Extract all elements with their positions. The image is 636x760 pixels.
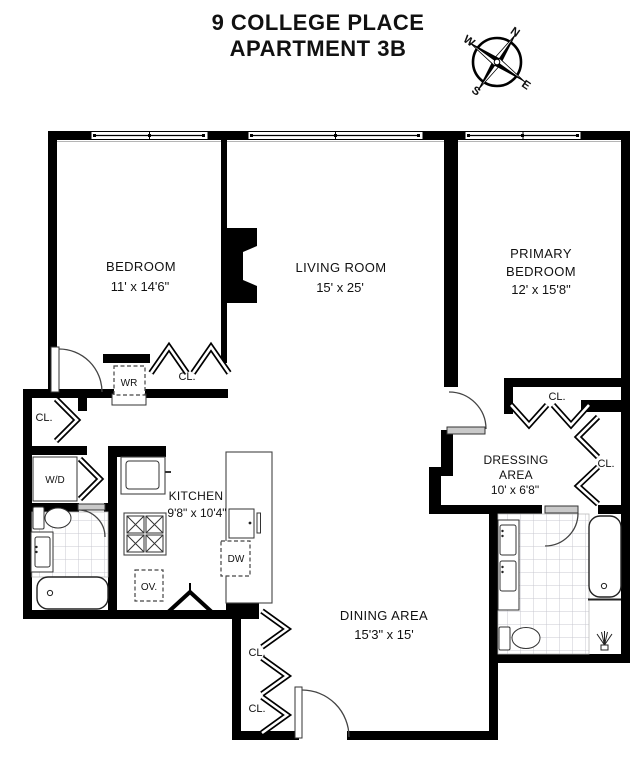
washer-dryer-label: W/D xyxy=(45,475,64,486)
dressing-area-label-1: DRESSING xyxy=(483,453,548,467)
toilet-icon xyxy=(33,507,71,529)
wall-segment xyxy=(208,131,248,140)
stove-icon xyxy=(124,513,166,555)
wall-segment xyxy=(504,378,630,387)
oven-icon: OV. xyxy=(135,570,163,601)
wall-segment xyxy=(621,131,630,663)
bedroom-dims: 11' x 14'6" xyxy=(111,279,170,294)
bathtub-icon xyxy=(37,577,108,609)
closet-label-hall: CL. xyxy=(35,412,52,424)
wall-segment xyxy=(108,446,166,457)
dressing-area-dims: 10' x 6'8" xyxy=(491,483,539,497)
wall-segment xyxy=(78,389,87,411)
windows xyxy=(91,132,581,140)
oven-label: OV. xyxy=(141,582,157,593)
closet-label-bedroom: CL. xyxy=(178,371,195,383)
bathroom-right xyxy=(498,506,621,654)
double-sink-vanity-icon xyxy=(498,520,519,610)
wall-segment xyxy=(347,731,498,740)
bathtub-icon xyxy=(589,516,621,597)
wall-segment xyxy=(598,505,630,514)
primary-bedroom-label-1: PRIMARY xyxy=(510,246,572,261)
bedroom-label: BEDROOM xyxy=(106,259,176,274)
compass-n-label: N xyxy=(508,25,522,40)
kitchen-island: DW xyxy=(221,452,272,603)
pantry-door-icon xyxy=(166,583,214,614)
title-line-1: 9 COLLEGE PLACE xyxy=(212,10,425,35)
closet-label-dining-upper: CL. xyxy=(248,647,265,659)
dining-area-label: DINING AREA xyxy=(340,608,428,623)
wall-segment xyxy=(489,654,630,663)
dressing-area-door xyxy=(447,392,486,434)
closet-label-dining-lower: CL. xyxy=(248,703,265,715)
living-room-dims: 15' x 25' xyxy=(316,280,364,295)
wall-segment xyxy=(423,131,465,140)
dishwasher-icon: DW xyxy=(221,541,250,576)
wall-segment xyxy=(108,446,117,619)
dressing-area-label-2: AREA xyxy=(499,468,533,482)
wall-segment xyxy=(429,505,542,514)
title-line-2: APARTMENT 3B xyxy=(230,36,407,61)
floor-plan-svg: 9 COLLEGE PLACE APARTMENT 3B N E S W xyxy=(0,0,636,760)
plan-title: 9 COLLEGE PLACE APARTMENT 3B xyxy=(212,10,425,61)
floor-plan-page: 9 COLLEGE PLACE APARTMENT 3B N E S W xyxy=(0,0,636,760)
structural-column xyxy=(221,228,257,303)
closet-label-dressing-right: CL. xyxy=(597,458,614,470)
window xyxy=(465,132,581,140)
shower-head-icon xyxy=(597,631,612,650)
compass-s-label: S xyxy=(469,84,482,98)
primary-bedroom-dims: 12' x 15'8" xyxy=(511,282,571,297)
window xyxy=(91,132,208,140)
wall-segment xyxy=(232,610,241,740)
wall-segment xyxy=(489,505,498,740)
kitchen-dims: 9'8" x 10'4" xyxy=(167,506,226,520)
bathroom-left xyxy=(31,504,108,609)
wardrobe-label: WR xyxy=(121,378,138,389)
wardrobe-icon: WR xyxy=(112,366,146,405)
washer-dryer-icon: W/D xyxy=(33,457,77,501)
kitchen-sink-icon xyxy=(121,457,171,494)
primary-bedroom-label-2: BEDROOM xyxy=(506,264,576,279)
closet-label-dressing-top: CL. xyxy=(548,391,565,403)
window xyxy=(248,132,423,140)
living-room-label: LIVING ROOM xyxy=(295,260,386,275)
dining-area-dims: 15'3" x 15' xyxy=(354,627,413,642)
compass-e-label: E xyxy=(519,78,532,92)
bedroom-door xyxy=(51,347,102,392)
wall-segment xyxy=(103,354,150,363)
entry-door xyxy=(295,687,349,738)
toilet-icon xyxy=(499,627,540,650)
dishwasher-label: DW xyxy=(228,554,245,565)
compass-rose-icon: N E S W xyxy=(461,25,533,99)
kitchen-fixtures: OV. DW xyxy=(121,452,272,614)
wall-segment xyxy=(23,446,87,455)
sink-vanity-icon xyxy=(31,532,53,572)
wall-segment xyxy=(444,139,458,387)
kitchen-label: KITCHEN xyxy=(169,489,224,503)
